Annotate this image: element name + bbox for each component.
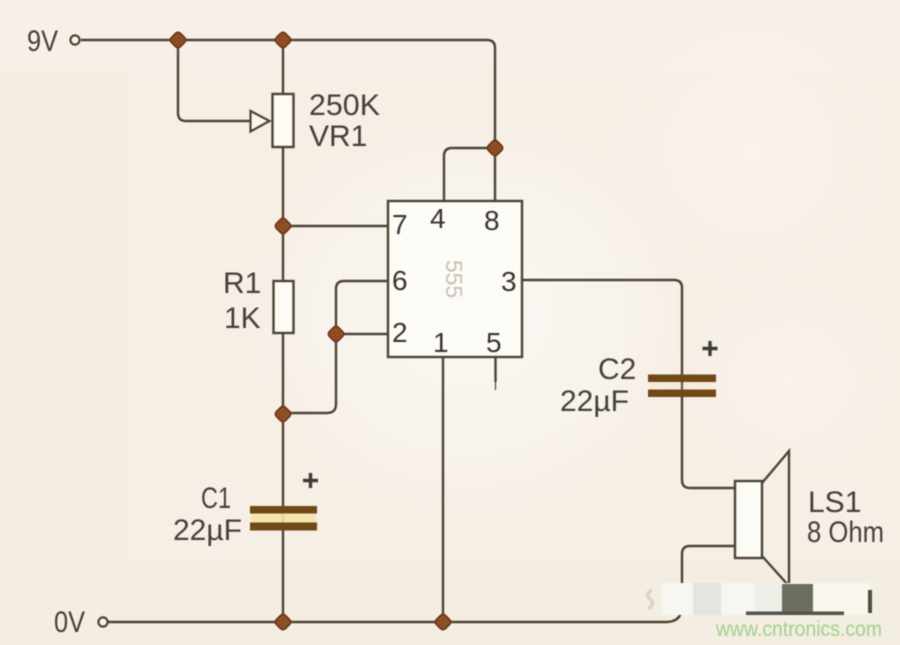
- svg-text:8: 8: [484, 205, 500, 236]
- svg-text:7: 7: [392, 209, 408, 240]
- svg-text:22µF: 22µF: [173, 514, 242, 547]
- svg-text:250K: 250K: [309, 89, 380, 122]
- svg-text:C1: C1: [201, 482, 231, 515]
- svg-text:8 Ohm: 8 Ohm: [807, 516, 884, 549]
- svg-text:4: 4: [430, 203, 446, 234]
- svg-text:www.cntronics.com: www.cntronics.com: [715, 618, 882, 641]
- svg-text:R1: R1: [223, 267, 261, 300]
- svg-text:3: 3: [501, 266, 517, 297]
- svg-text:VR1: VR1: [309, 120, 367, 153]
- svg-text:2: 2: [392, 317, 408, 348]
- svg-text:1K: 1K: [224, 302, 261, 335]
- svg-text:C2: C2: [598, 353, 636, 386]
- svg-text:0V: 0V: [54, 606, 85, 639]
- svg-text:22µF: 22µF: [560, 385, 629, 418]
- svg-text:6: 6: [392, 265, 408, 296]
- svg-text:555: 555: [441, 260, 467, 298]
- svg-text:5: 5: [486, 327, 502, 358]
- svg-text:9V: 9V: [27, 25, 58, 58]
- svg-text:LS1: LS1: [808, 486, 861, 519]
- svg-text:1: 1: [433, 327, 449, 358]
